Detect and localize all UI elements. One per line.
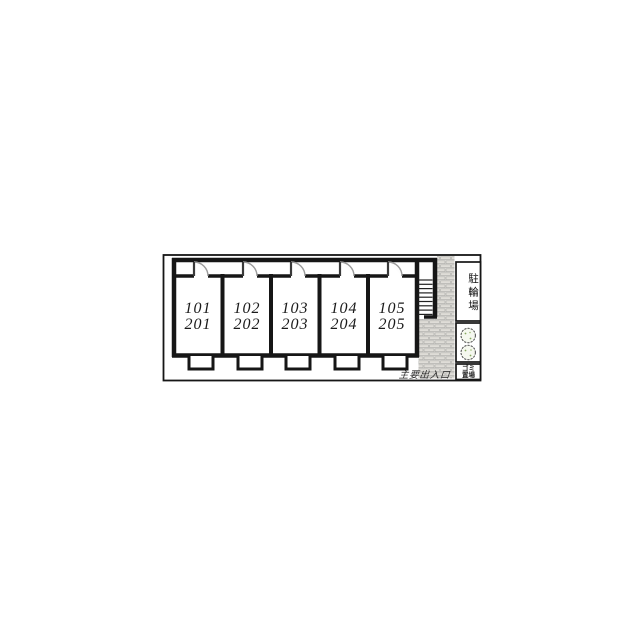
unit-number-2f: 202 bbox=[223, 317, 271, 333]
unit-number-1f: 102 bbox=[223, 301, 271, 317]
unit-label: 101 201 bbox=[174, 301, 222, 332]
unit-number-1f: 105 bbox=[368, 301, 416, 317]
garbage-label-line2: 置場 bbox=[456, 372, 481, 379]
entrance-steps bbox=[189, 356, 407, 369]
site-plan: 101 201 102 202 103 203 104 204 105 205 … bbox=[0, 0, 640, 640]
tree-icon bbox=[461, 328, 475, 342]
bicycle-parking-label: 駐輪場 bbox=[457, 268, 480, 318]
door-swing-icon bbox=[243, 262, 257, 276]
entrance-step bbox=[286, 356, 310, 369]
tree-icon bbox=[461, 345, 475, 359]
unit-label: 105 205 bbox=[368, 301, 416, 332]
entrance-step bbox=[189, 356, 213, 369]
garbage-label: ゴミ 置場 bbox=[456, 365, 481, 379]
unit-number-1f: 101 bbox=[174, 301, 222, 317]
unit-label: 104 204 bbox=[320, 301, 368, 332]
door-swing-icon bbox=[194, 262, 208, 276]
unit-number-2f: 201 bbox=[174, 317, 222, 333]
unit-number-2f: 205 bbox=[368, 317, 416, 333]
main-entrance-label: 主要出入口 bbox=[398, 367, 459, 381]
unit-number-1f: 104 bbox=[320, 301, 368, 317]
entrance-step bbox=[335, 356, 359, 369]
unit-number-2f: 204 bbox=[320, 317, 368, 333]
door-swing-icon bbox=[291, 262, 305, 276]
door-swing-icon bbox=[340, 262, 354, 276]
door-swing-icon bbox=[388, 262, 402, 276]
staircase bbox=[419, 280, 433, 314]
unit-label: 102 202 bbox=[223, 301, 271, 332]
unit-number-1f: 103 bbox=[271, 301, 319, 317]
unit-number-2f: 203 bbox=[271, 317, 319, 333]
entrance-step bbox=[238, 356, 262, 369]
door-swing-icons bbox=[194, 262, 402, 276]
unit-label: 103 203 bbox=[271, 301, 319, 332]
